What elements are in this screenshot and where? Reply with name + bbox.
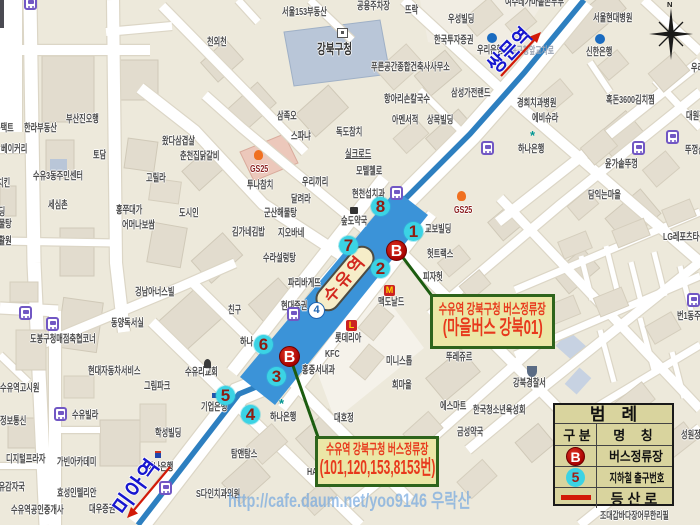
svg-text:N: N [667,0,672,9]
